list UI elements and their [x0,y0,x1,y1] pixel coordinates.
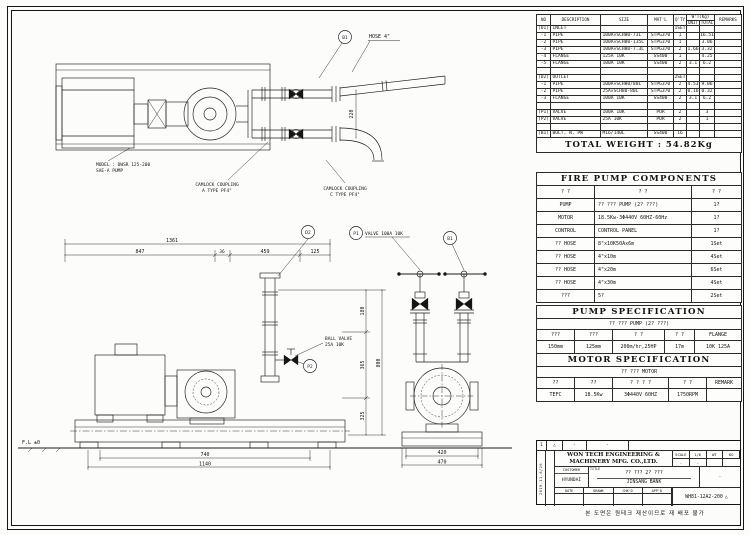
valve-p1-label: VALVE 100A 10K [365,231,403,237]
cell-wt-unit [687,68,700,75]
customer-label: CUSTOMER [555,467,588,474]
pump-plan [166,88,236,140]
approval-header: DRAWN [584,488,613,493]
cell-item: PUMP [537,199,595,212]
components-row: PUMP ?? ??? PUMP (2? ???) 1? [537,199,742,212]
cell-qty: 2Set [692,290,742,303]
cell-qty [674,103,687,110]
rev-spacer [629,441,740,451]
cell-qty: 2 [674,82,687,89]
components-panel: FIRE PUMP COMPONENTS ? ?? ?? ? PUMP ?? ?… [536,172,741,303]
dim-220: 220 [349,109,355,118]
pump-spec-header: ??? [575,330,613,341]
cell-description: VALVE [551,117,601,124]
svg-text:P2: P2 [307,364,313,370]
cell-qty: 2 [674,110,687,117]
ball-valve-label: BALL VALVE 25A 10K [295,336,352,356]
cell-remarks [715,110,742,117]
cell-size [601,75,648,82]
drawing-title-line1: ?? ??? 2? ??? [589,470,699,478]
cell-item: ?? HOSE [537,238,595,251]
cell-description: PIPE [551,47,601,54]
parts-row [537,124,742,131]
cell-matl: STPG370 [648,82,674,89]
cell-description: PIPE [551,89,601,96]
dim-plan-height: 220 [349,90,356,138]
cell-wt-total: 9.06 [700,82,715,89]
svg-text:B1: B1 [342,35,348,41]
cell-remarks [715,124,742,131]
motor-spec-header: REMARK [707,378,742,389]
blank-cell-3 [707,459,724,467]
svg-text:459: 459 [260,249,269,255]
cell-no [537,103,551,110]
cell-matl: SS400 [648,61,674,68]
wt-label: WT [707,451,724,459]
cell-size: 100A×SCH80-73L [601,33,648,40]
cell-wt-unit: 0.16 [687,89,700,96]
cell-wt-unit [687,110,700,117]
rev-dash-1: - [563,441,587,451]
components-header: ? ? [595,186,692,199]
cell-remarks [715,47,742,54]
motor-spec-header: ? ? [669,378,707,389]
cell-matl: PUR [648,117,674,124]
svg-text:365: 365 [360,360,366,369]
cell-qty: 1 [674,40,687,47]
handwheel-valve-left [397,271,440,313]
svg-text:SAE-A PUMP: SAE-A PUMP [96,168,123,174]
col-size: SIZE [601,15,648,26]
drawing-title-line2: JINSANG BANK [597,478,691,487]
cell-matl [648,124,674,131]
parts-row: -1 PIPE 100A×SCH80-73L STPG370 1 16.51 [537,33,742,40]
copyright-note: 본 도면은 원테크 재산이므로 재 배포 불가 [552,509,738,517]
cell-qty: 2 [674,47,687,54]
pump-casing-detail [406,364,478,428]
approval-header: CHK'D [614,488,643,493]
svg-text:420: 420 [437,450,446,456]
components-title: FIRE PUMP COMPONENTS [537,173,742,186]
cell-no: (P1) [537,110,551,117]
parts-row: -2 PIPE 25A×SCH80-80L STPG370 2 0.16 0.3… [537,89,742,96]
cell-qty [674,68,687,75]
cell-description: VALVE [551,110,601,117]
motor-spec-header: ?? [575,378,613,389]
cell-wt-total: 16.51 [700,33,715,40]
motor-spec-value: 1750RPM [669,389,707,402]
model-label: MODEL : DWSR 125-200 SAE-A PUMP [96,148,150,174]
pump-spec-value: 10K 125A [695,341,742,354]
cell-no: -1 [537,82,551,89]
motor-spec-value [707,389,742,402]
cell-remarks [715,26,742,33]
cell-qty: 1 [674,54,687,61]
col-wt-total: TOTAL [700,20,715,26]
side-strip [546,451,555,506]
cell-size [601,103,648,110]
camlock-coupling-upper [332,86,340,102]
pump-spec-header: FLANGE [695,330,742,341]
cell-description [551,68,601,75]
cell-description: INLET [551,26,601,33]
motor-elevation [95,344,165,422]
cell-matl: SS400 [648,96,674,103]
cell-remarks [715,82,742,89]
cell-matl [648,68,674,75]
cell-qty: 2 [674,89,687,96]
dim-detail-base: 420 470 [402,448,482,468]
svg-text:180: 180 [360,306,366,315]
cell-no: -1 [537,33,551,40]
cell-matl [648,75,674,82]
parts-row: (B1) BOLT, N, PW M16/140L SS400 16 [537,131,742,138]
svg-text:1361: 1361 [166,238,178,244]
cell-wt-unit: 1.66 [687,47,700,54]
components-row: ?? HOSE 4"x10m 4Set [537,251,742,264]
parts-row: (P2) VALVE 25A 10K PUR 2 1 [537,117,742,124]
cell-no: -5 [537,61,551,68]
customer-value: HYUNDAI [555,474,588,487]
pump-spec-value: 200m/hr,25HP [613,341,665,354]
cell-item: ?? HOSE [537,264,595,277]
cell-description: BOLT, N, PW [551,131,601,138]
title-label: TITLE [590,467,600,471]
parts-row: -4 FLANGE 125A 10K SS400 1 4.25 [537,54,742,61]
pump-spec-header-row: ??????? ?? ?FLANGE [537,330,742,341]
approval-signatures [555,494,672,506]
cell-qty: 6Set [692,264,742,277]
cell-matl: STPG370 [648,89,674,96]
drawing-number: WH81-12A2-200 [685,495,723,500]
hose-upper [340,76,445,96]
drawing-number-cell: WH81-12A2-200 △ [673,488,740,506]
manifold-pipes [413,313,471,362]
pump-spec-table: PUMP SPECIFICATION ?? ??? PUMP (2? ???) … [536,305,742,354]
cell-remarks [715,89,742,96]
cell-remarks [715,54,742,61]
cell-wt-total: 6.2 [700,96,715,103]
approval-header: DATE [555,488,584,493]
cell-size: 100A 10K [601,96,648,103]
svg-text:C TYPE PF4": C TYPE PF4" [330,192,360,198]
parts-row: (D2) OUTLET 2SET [537,75,742,82]
components-row: ?? HOSE 4"x20m 6Set [537,264,742,277]
parts-list-panel: NO DESCRIPTION SIZE MAT'L Q'TY W'T(Kg) R… [536,14,741,153]
pump-spec-value-row: 150mm125mm200m/hr,25HP17m10K 125A [537,341,742,354]
cell-size: 100A×SCH80-7.3L [601,47,648,54]
cell-item: ?? HOSE [537,277,595,290]
rev-dash-2: - [587,441,629,451]
cell-wt-total: 0.32 [700,89,715,96]
coupling-plan [134,100,166,128]
date-text: 2019-11-8/26 [539,463,543,495]
cell-remarks [715,75,742,82]
cell-no: -2 [537,89,551,96]
col-no: NO [537,15,551,26]
cell-no: -2 [537,40,551,47]
scale-value: 1/6 [690,451,707,459]
cell-wt-total: 3.32 [700,47,715,54]
cell-description: FLANGE [551,54,601,61]
cell-spec: 4"x10m [595,251,692,264]
cell-wt-total: 1 [700,117,715,124]
cell-qty: 2 [674,61,687,68]
cell-wt-total: 4.25 [700,54,715,61]
motor-spec-header-row: ????? ? ? ?? ?REMARK [537,378,742,389]
plan-view: 220 B1 HOSE 4" MODEL : DWSR 125-200 SAE-… [56,31,445,199]
svg-text:125: 125 [310,249,319,255]
cell-description: PIPE [551,40,601,47]
cell-matl: STPG370 [648,33,674,40]
drawing-title-cell: TITLE ?? ??? 2? ??? JINSANG BANK [589,467,700,488]
cell-description: FLANGE [551,96,601,103]
drawing-sheet: { "parts_table": { "headers": {"no":"NO"… [0,0,750,535]
cell-spec: 5? [595,290,692,303]
components-header: ? ? [537,186,595,199]
col-matl: MAT'L [648,15,674,26]
cell-remarks [715,61,742,68]
parts-row: -3 PIPE 100A×SCH80-7.3L STPG370 2 1.66 3… [537,47,742,54]
svg-text:740: 740 [200,452,209,458]
cell-remarks [715,131,742,138]
parts-row: (P1) VALVE 100A 10K PUR 2 3 [537,110,742,117]
cell-remarks [715,96,742,103]
cell-no: (P2) [537,117,551,124]
motor-spec-table: MOTOR SPECIFICATION ?? ??? MOTOR ????? ?… [536,353,742,402]
cell-qty: 4Set [692,277,742,290]
motor-spec-title: MOTOR SPECIFICATION [537,354,742,367]
cell-matl [648,26,674,33]
revision-row: 1 △ - - [537,441,740,451]
cell-remarks [715,117,742,124]
svg-text:847: 847 [135,249,144,255]
cell-wt-unit: 3.1 [687,61,700,68]
cell-remarks [715,68,742,75]
cell-spec: CONTROL PANEL [595,225,692,238]
cell-remarks [715,40,742,47]
cell-wt-total: 3.06 [700,40,715,47]
cell-size: 100A 10K [601,61,648,68]
wt-value: KG [723,451,740,459]
svg-text:P1: P1 [353,231,359,237]
svg-text:1140: 1140 [199,462,211,468]
dwg-triangle-icon: △ [725,495,728,500]
cell-remarks [715,103,742,110]
balloon-d2: D2 [278,226,315,277]
elevation-view: 1361 847 36 459 125 D2 [18,226,512,471]
cell-qty: 1? [692,225,742,238]
cad-drawing: 220 B1 HOSE 4" MODEL : DWSR 125-200 SAE-… [12,10,534,524]
cell-description: OUTLET [551,75,601,82]
balloon-b1-plan: B1 [319,31,352,79]
svg-text:325: 325 [360,411,366,420]
cell-no: (B1) [537,131,551,138]
cell-spec: 4"x30m [595,277,692,290]
col-description: DESCRIPTION [551,15,601,26]
cell-wt-total [700,124,715,131]
cell-item: CONTROL [537,225,595,238]
svg-text:470: 470 [437,460,446,466]
date-strip: 2019-11-8/26 [537,451,546,506]
cell-size: 100A×SCH80/80L [601,82,648,89]
components-row: CONTROL CONTROL PANEL 1? [537,225,742,238]
components-row: MOTOR 18.5Kw-3Φ440V 60HZ-60Hz 1? [537,212,742,225]
motor-spec-value: 3Φ440V 60HZ [613,389,669,402]
blank-cell-2: - [690,459,707,467]
total-weight: TOTAL WEIGHT : 54.82Kg [537,138,742,153]
cell-wt-unit: 3.1 [687,96,700,103]
cell-wt-unit [687,103,700,110]
parts-rows: (D1) INLET 1SET -1 PIPE 100A×SCH80-73L [537,26,742,138]
cell-matl: SS400 [648,54,674,61]
cell-wt-total [700,103,715,110]
cell-matl [648,103,674,110]
pump-spec-value: 150mm [537,341,575,354]
manifold-detail-view: P1 VALVE 100A 10K B1 [350,227,487,469]
cell-size [601,124,648,131]
approval-header: APP'D [643,488,672,493]
cell-wt-total [700,131,715,138]
cell-size: 125A 10K [601,54,648,61]
camlock-c-label: CAMLOCK COUPLING C TYPE PF4" [323,160,367,198]
cell-spec: 18.5Kw-3Φ440V 60HZ-60Hz [595,212,692,225]
parts-row: -2 PIPE 100A×SCH80-135L STPG370 1 3.06 [537,40,742,47]
cell-no: -3 [537,47,551,54]
skid-plan-outline [56,64,270,150]
dim-chain-right: 180 365 325 800 [278,290,386,435]
pump-spec-header: ? ? [613,330,665,341]
blank-cell-1: - [673,459,690,467]
cell-size [601,68,648,75]
components-row: ??? 5? 2Set [537,290,742,303]
parts-row [537,68,742,75]
pump-spec-title: PUMP SPECIFICATION [537,306,742,319]
cell-spec: 4"x20m [595,264,692,277]
cell-size: 100A×SCH80-135L [601,40,648,47]
components-table: FIRE PUMP COMPONENTS ? ?? ?? ? PUMP ?? ?… [536,172,742,303]
cell-size: 25A×SCH80-80L [601,89,648,96]
pump-spec-value: 17m [665,341,695,354]
svg-text:800: 800 [376,358,382,367]
cell-qty: 1 [674,33,687,40]
cell-wt-unit [687,54,700,61]
pump-spec-value: 125mm [575,341,613,354]
customer-cell: CUSTOMER HYUNDAI [555,467,589,488]
handwheel-valve-right [443,271,486,313]
cell-matl: STPG370 [648,47,674,54]
cell-no: -3 [537,96,551,103]
cell-matl: SS400 [648,131,674,138]
col-remarks: REMARKS [715,15,742,26]
cell-description [551,103,601,110]
cell-remarks [715,33,742,40]
cell-qty: 1? [692,212,742,225]
cell-wt-unit [687,33,700,40]
cell-wt-unit [687,75,700,82]
parts-row: (D1) INLET 1SET [537,26,742,33]
cell-size: M16/140L [601,131,648,138]
valve-symbol-lower [289,129,303,139]
hose-label: HOSE 4" [352,34,400,72]
cell-wt-total [700,68,715,75]
cell-wt-unit [687,131,700,138]
svg-text:A TYPE PF4": A TYPE PF4" [202,188,232,194]
pump-spec-panel: PUMP SPECIFICATION ?? ??? PUMP (2? ???) … [536,305,741,354]
cell-description: PIPE [551,33,601,40]
components-header-row: ? ?? ?? ? [537,186,742,199]
cell-size [601,26,648,33]
svg-text:HOSE 4": HOSE 4" [369,34,390,40]
riser-pipe [260,273,280,382]
cell-wt-unit [687,40,700,47]
cell-wt-total [700,75,715,82]
pump-spec-header: ? ? [665,330,695,341]
svg-text:D2: D2 [305,230,311,236]
cell-qty: 2 [674,117,687,124]
cell-spec: ?? ??? PUMP (2? ???) [595,199,692,212]
cell-wt-total: 3 [700,110,715,117]
svg-text:36: 36 [219,249,225,255]
cell-wt-total: 6.2 [700,61,715,68]
balloon-p1: P1 VALVE 100A 10K [350,227,421,271]
motor-spec-value: TEFC [537,389,575,402]
cell-qty: 2 [674,96,687,103]
hose-lower [340,128,384,161]
pump-elevation [165,370,235,424]
motor-spec-value-row: TEFC18.5Kw3Φ440V 60HZ1750RPM [537,389,742,402]
ball-valve-symbol [275,349,298,365]
cell-description: FLANGE [551,61,601,68]
cell-matl: STPG370 [648,40,674,47]
components-row: ?? HOSE 4"x30m 4Set [537,277,742,290]
side-dash-cell: - [700,467,740,488]
cell-no: (D2) [537,75,551,82]
cell-no: -4 [537,54,551,61]
parts-row [537,103,742,110]
col-qty: Q'TY [674,15,687,26]
svg-text:25A 10K: 25A 10K [325,342,344,348]
cell-no [537,124,551,131]
cell-spec: 8"x10K50Ax6m [595,238,692,251]
scale-label: SCALE [673,451,690,459]
company-name: WON TECH ENGINEERING & MACHINERY MFG. CO… [555,451,673,467]
approval-grid: DATEDRAWNCHK'DAPP'D [555,488,673,506]
svg-text:B1: B1 [447,236,453,242]
valve-symbol-upper [289,89,303,99]
cell-wt-unit: 4.53 [687,82,700,89]
camlock-coupling-lower [332,126,340,142]
cell-item: MOTOR [537,212,595,225]
cell-description: PIPE [551,82,601,89]
components-header: ? ? [692,186,742,199]
cell-qty: 1Set [692,238,742,251]
parts-row: -1 PIPE 100A×SCH80/80L STPG370 2 4.53 9.… [537,82,742,89]
dim-chain-bottom: 740 1140 [88,450,330,470]
discharge-header-plan [236,87,332,141]
title-block: 1 △ - - 2019-11-8/26 WON TECH ENGINEERIN… [536,440,741,505]
fl-label: F.L ±0 [22,440,40,446]
rev-number: 1 [537,441,547,451]
cell-description [551,124,601,131]
col-wt-unit: UNIT [687,20,700,26]
motor-spec-value: 18.5Kw [575,389,613,402]
cell-item: ??? [537,290,595,303]
cell-size: 100A 10K [601,110,648,117]
cell-qty: 1? [692,199,742,212]
cell-no [537,68,551,75]
cell-matl: PUR [648,110,674,117]
